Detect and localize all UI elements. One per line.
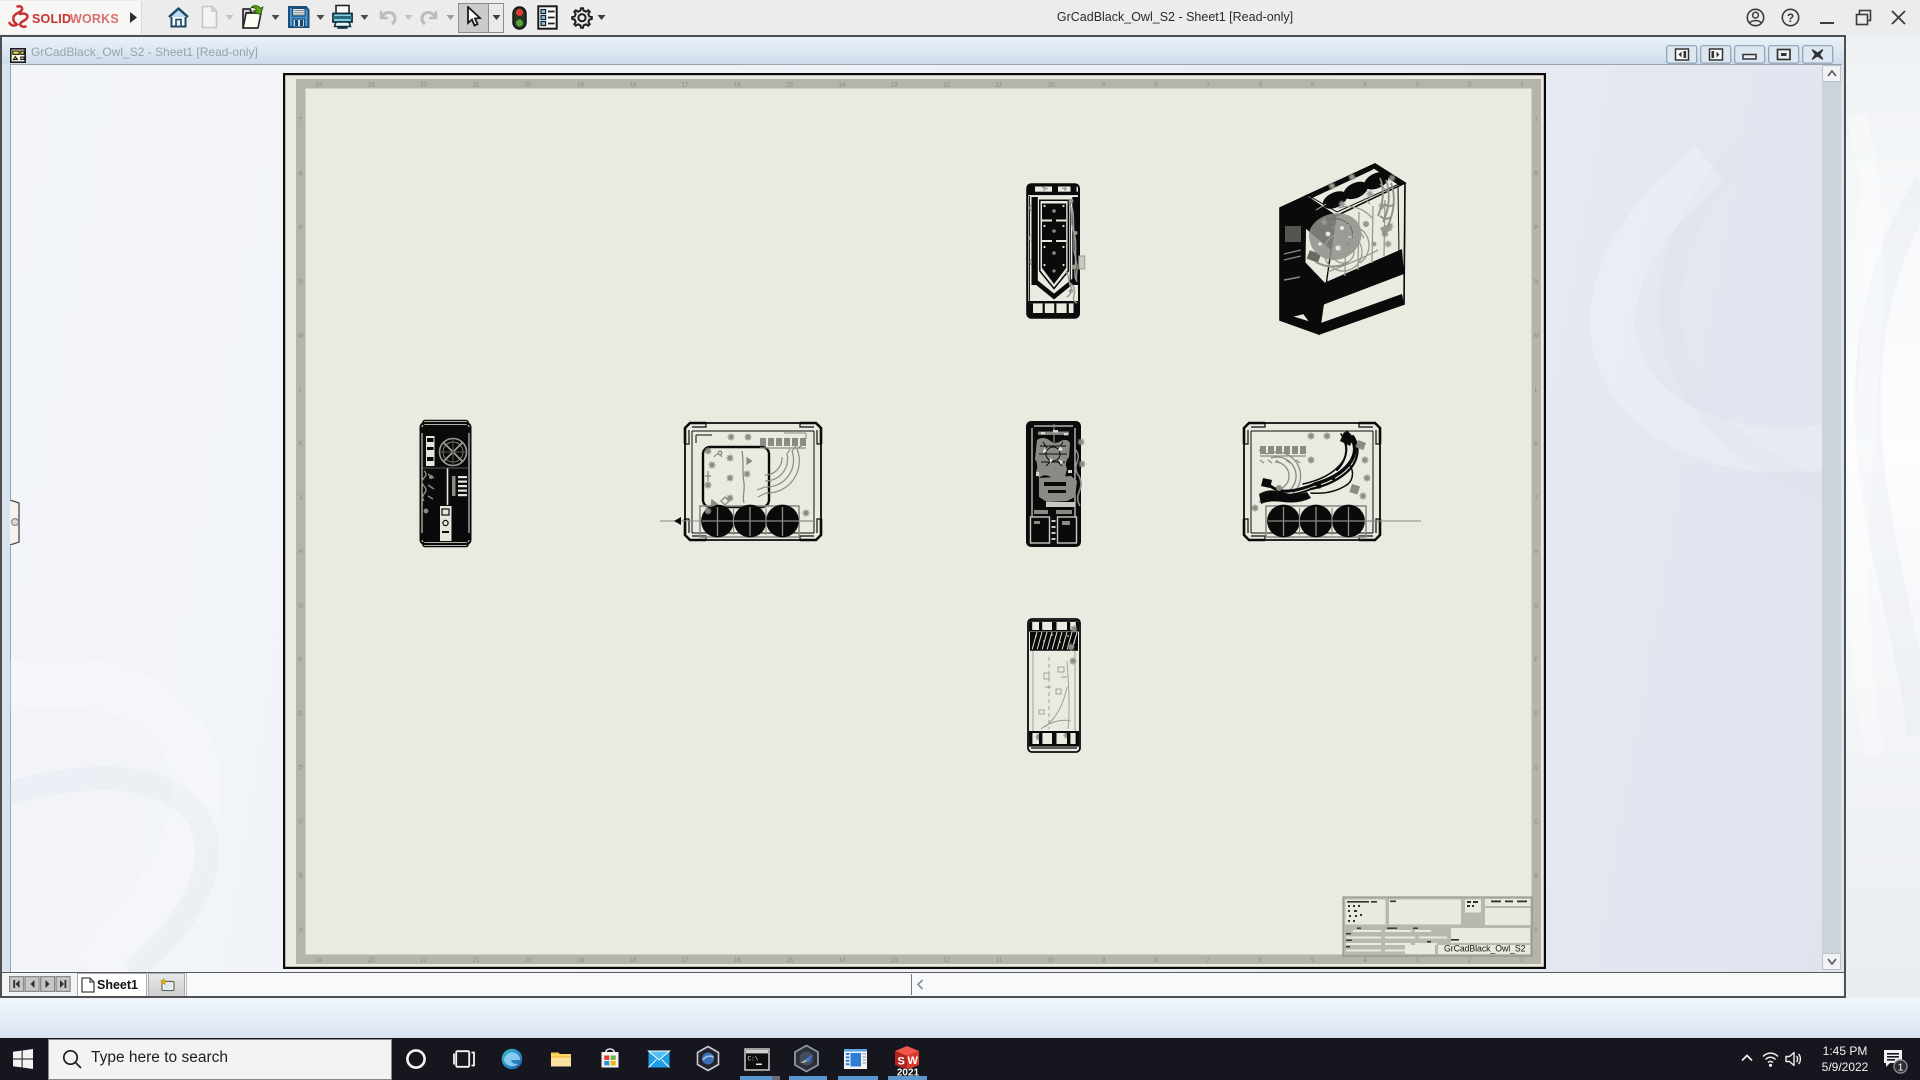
svg-text:16: 16 (734, 83, 741, 89)
svg-text:12: 12 (943, 83, 950, 89)
svg-text:11: 11 (996, 83, 1003, 89)
svg-text:24: 24 (316, 958, 323, 964)
svg-text:B: B (1534, 874, 1538, 880)
svg-text:11: 11 (996, 958, 1003, 964)
svg-text:20: 20 (525, 958, 532, 964)
svg-text:J: J (1535, 496, 1538, 502)
svg-text:13: 13 (891, 958, 898, 964)
svg-text:S: S (898, 1056, 905, 1068)
svg-text:10: 10 (1048, 958, 1055, 964)
svg-text:15: 15 (786, 83, 793, 89)
svg-text:D: D (1534, 766, 1539, 772)
svg-text:SOLID: SOLID (32, 12, 71, 26)
svg-text:A: A (1534, 928, 1538, 934)
svg-text:H: H (1534, 550, 1538, 556)
svg-text:T: T (299, 118, 303, 124)
svg-text:14: 14 (839, 83, 846, 89)
svg-text:G: G (1534, 604, 1539, 610)
svg-text:N: N (299, 280, 303, 286)
svg-text:16: 16 (734, 958, 741, 964)
svg-text:E: E (299, 712, 303, 718)
svg-text:21: 21 (473, 83, 480, 89)
svg-text:17: 17 (682, 958, 689, 964)
svg-text:19: 19 (577, 958, 584, 964)
svg-text:C:\: C:\ (748, 1056, 759, 1063)
svg-text:15: 15 (786, 958, 793, 964)
svg-text:B: B (299, 874, 303, 880)
svg-text:R: R (1534, 172, 1539, 178)
svg-text:P: P (1534, 226, 1538, 232)
svg-text:14: 14 (839, 958, 846, 964)
svg-text:?: ? (1787, 11, 1794, 25)
svg-text:F: F (299, 658, 303, 664)
svg-text:M: M (1534, 334, 1539, 340)
svg-text:W: W (908, 1055, 919, 1067)
svg-text:N: N (1534, 280, 1538, 286)
svg-text:20: 20 (525, 83, 532, 89)
svg-text:P: P (299, 226, 303, 232)
svg-text:D: D (299, 766, 304, 772)
svg-text:18: 18 (629, 83, 636, 89)
svg-text:T: T (1534, 118, 1538, 124)
svg-text:22: 22 (420, 83, 427, 89)
svg-text:13: 13 (891, 83, 898, 89)
svg-text:J: J (299, 496, 302, 502)
svg-text:C: C (299, 820, 304, 826)
svg-text:K: K (1534, 442, 1538, 448)
svg-text:22: 22 (420, 958, 427, 964)
svg-text:GrCadBlack_Owl_S2: GrCadBlack_Owl_S2 (1444, 944, 1526, 954)
svg-text:10: 10 (1048, 83, 1055, 89)
svg-text:23: 23 (368, 83, 375, 89)
svg-text:17: 17 (682, 83, 689, 89)
svg-text:1: 1 (1898, 1062, 1904, 1074)
svg-text:H: H (299, 550, 303, 556)
svg-text:21: 21 (473, 958, 480, 964)
svg-text:M: M (298, 334, 303, 340)
svg-text:12: 12 (943, 958, 950, 964)
svg-text:E: E (1534, 712, 1538, 718)
svg-text:K: K (299, 442, 303, 448)
svg-text:18: 18 (629, 958, 636, 964)
svg-text:23: 23 (368, 958, 375, 964)
svg-text:24: 24 (316, 83, 323, 89)
svg-text:C: C (1534, 820, 1539, 826)
svg-text:F: F (1534, 658, 1538, 664)
svg-text:R: R (299, 172, 304, 178)
svg-text:G: G (298, 604, 303, 610)
svg-text:19: 19 (577, 83, 584, 89)
svg-text:A: A (299, 928, 303, 934)
svg-text:WORKS: WORKS (70, 12, 119, 26)
